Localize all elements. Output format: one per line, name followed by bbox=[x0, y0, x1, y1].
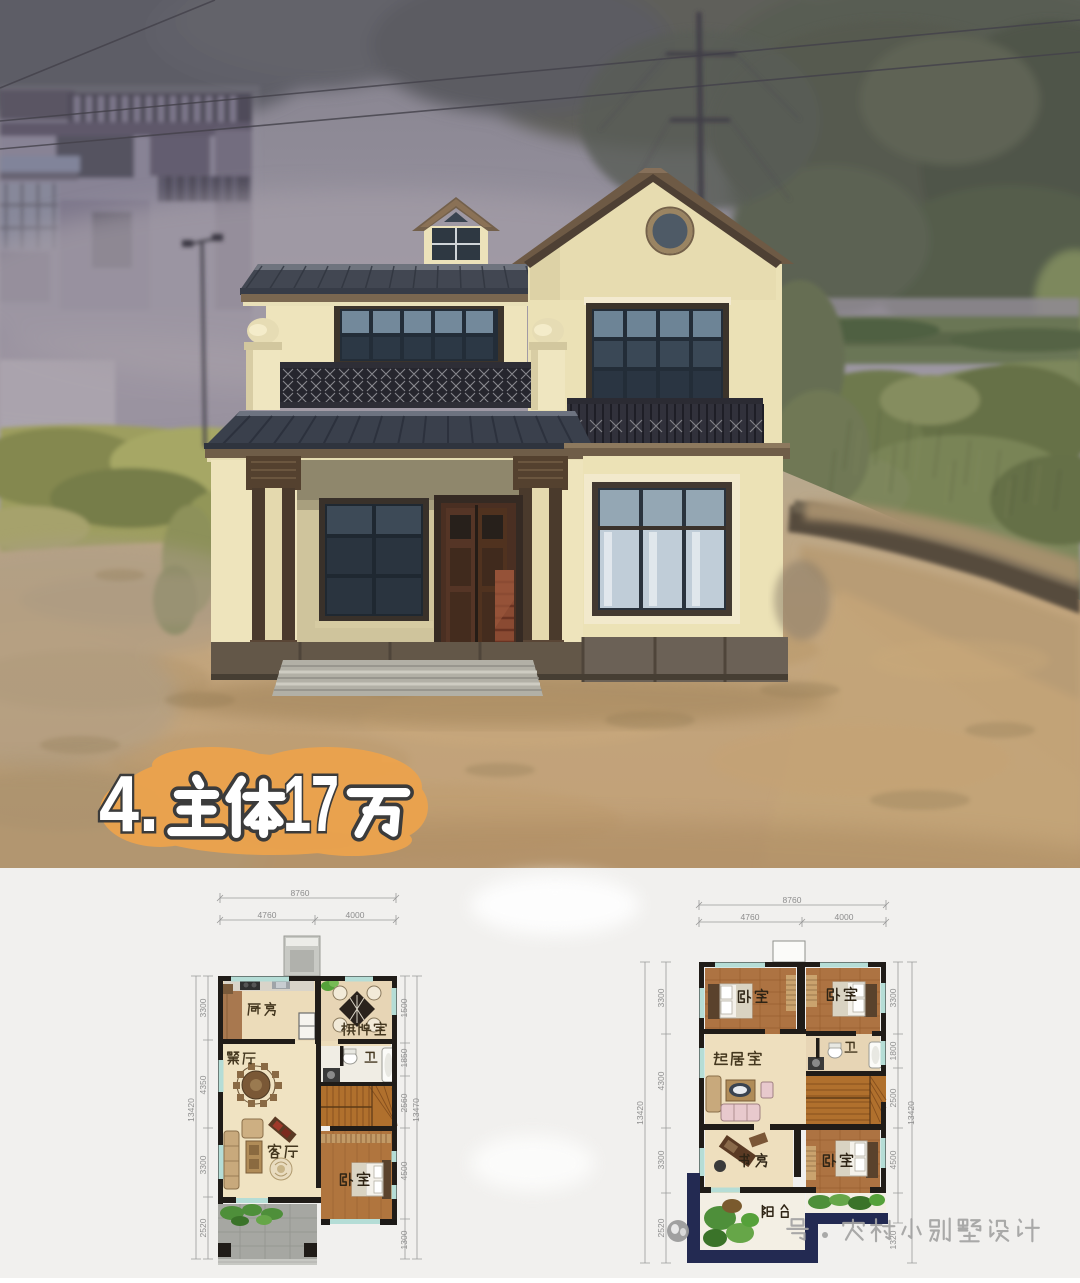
svg-text:1500: 1500 bbox=[399, 998, 409, 1017]
svg-text:13420: 13420 bbox=[906, 1101, 916, 1125]
svg-text:4500: 4500 bbox=[888, 1150, 898, 1169]
svg-text:2560: 2560 bbox=[399, 1093, 409, 1112]
svg-text:4500: 4500 bbox=[399, 1161, 409, 1180]
svg-text:2520: 2520 bbox=[198, 1218, 208, 1237]
svg-text:4350: 4350 bbox=[198, 1075, 208, 1094]
svg-text:4760: 4760 bbox=[741, 912, 760, 922]
svg-text:3300: 3300 bbox=[888, 988, 898, 1007]
svg-text:3300: 3300 bbox=[656, 1150, 666, 1169]
svg-text:13420: 13420 bbox=[186, 1098, 196, 1122]
svg-text:1800: 1800 bbox=[888, 1041, 898, 1060]
svg-text:1850: 1850 bbox=[399, 1048, 409, 1067]
svg-text:4000: 4000 bbox=[346, 910, 365, 920]
svg-text:8760: 8760 bbox=[783, 895, 802, 905]
svg-text:17: 17 bbox=[283, 759, 339, 848]
svg-text:2500: 2500 bbox=[888, 1088, 898, 1107]
svg-text:4000: 4000 bbox=[835, 912, 854, 922]
svg-text:4.: 4. bbox=[99, 759, 159, 848]
svg-text:13420: 13420 bbox=[635, 1101, 645, 1125]
svg-text:8760: 8760 bbox=[291, 888, 310, 898]
svg-text:3300: 3300 bbox=[656, 988, 666, 1007]
svg-text:1300: 1300 bbox=[399, 1230, 409, 1249]
svg-text:13470: 13470 bbox=[411, 1098, 421, 1122]
svg-text:4760: 4760 bbox=[258, 910, 277, 920]
svg-text:4300: 4300 bbox=[656, 1071, 666, 1090]
svg-text:3300: 3300 bbox=[198, 1155, 208, 1174]
svg-text:3300: 3300 bbox=[198, 998, 208, 1017]
